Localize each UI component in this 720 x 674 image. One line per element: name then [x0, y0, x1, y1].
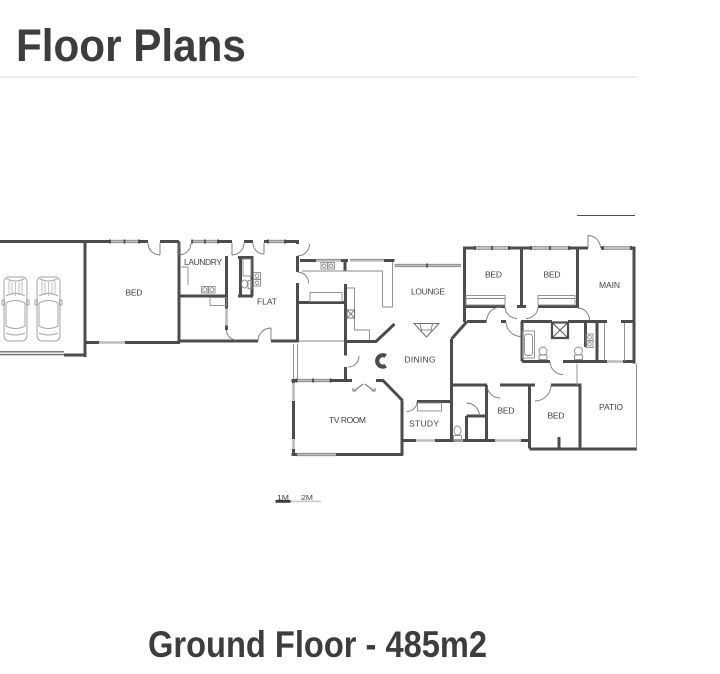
svg-text:DINING: DINING	[405, 355, 436, 365]
svg-text:LOUNGE: LOUNGE	[411, 287, 445, 297]
svg-text:BED: BED	[485, 270, 502, 280]
svg-text:2M: 2M	[301, 495, 313, 502]
svg-text:LAUNDRY: LAUNDRY	[184, 257, 222, 267]
svg-text:FLAT: FLAT	[257, 297, 277, 307]
svg-text:PATIO: PATIO	[599, 402, 623, 412]
svg-text:1M: 1M	[277, 495, 289, 502]
svg-text:TV ROOM: TV ROOM	[329, 415, 366, 425]
svg-text:BED: BED	[498, 406, 515, 416]
svg-text:STUDY: STUDY	[409, 419, 439, 429]
svg-text:BED: BED	[126, 288, 143, 298]
svg-text:MAIN: MAIN	[599, 280, 620, 290]
svg-text:BED: BED	[544, 270, 561, 280]
svg-text:BED: BED	[548, 411, 565, 421]
